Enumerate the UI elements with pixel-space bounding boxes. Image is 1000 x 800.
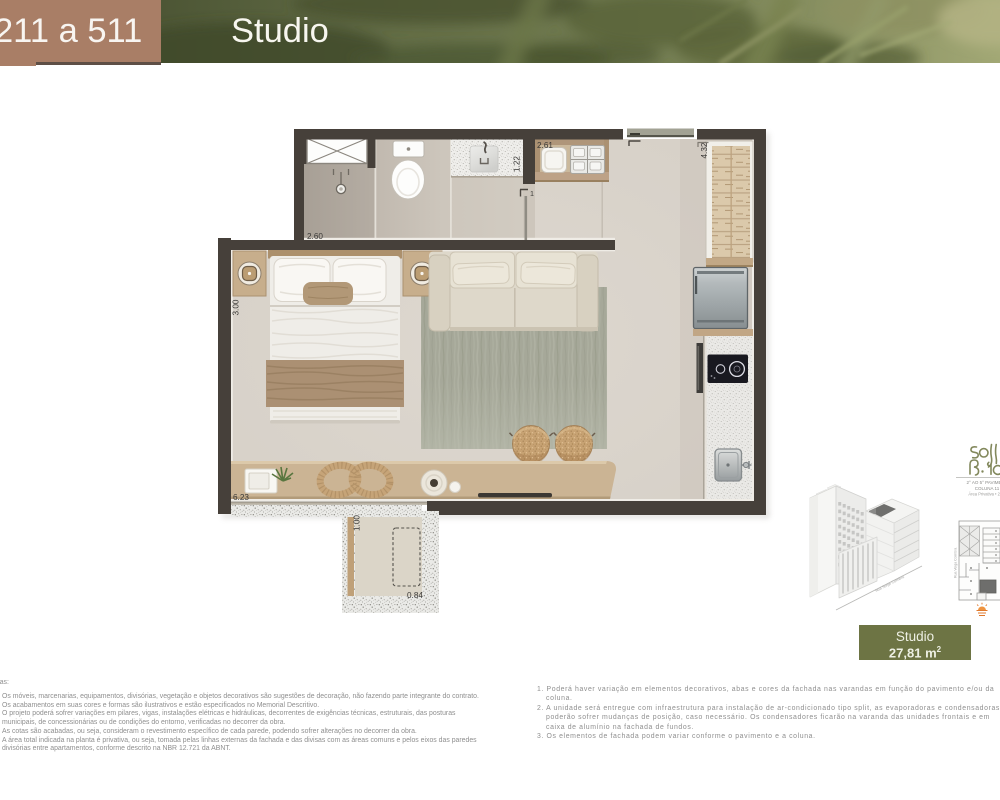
- svg-text:2.61: 2.61: [537, 141, 553, 150]
- svg-text:2° AO 5° PAVIMENT: 2° AO 5° PAVIMENT: [967, 480, 1000, 485]
- svg-text:3.00: 3.00: [232, 299, 241, 315]
- svg-text:1.22: 1.22: [513, 156, 522, 172]
- svg-text:1.00: 1.00: [353, 515, 362, 531]
- svg-text:4.32: 4.32: [700, 142, 709, 158]
- svg-text:2.60: 2.60: [307, 232, 323, 241]
- svg-text:Área Privativa • 27,8: Área Privativa • 27,8: [968, 492, 1000, 497]
- svg-text:6.23: 6.23: [233, 493, 249, 502]
- svg-text:0.84: 0.84: [407, 591, 423, 600]
- svg-text:COLUNA 11: COLUNA 11: [975, 486, 1000, 491]
- svg-text:Rua Veiga Coimbra: Rua Veiga Coimbra: [954, 548, 958, 578]
- svg-text:1: 1: [530, 189, 534, 198]
